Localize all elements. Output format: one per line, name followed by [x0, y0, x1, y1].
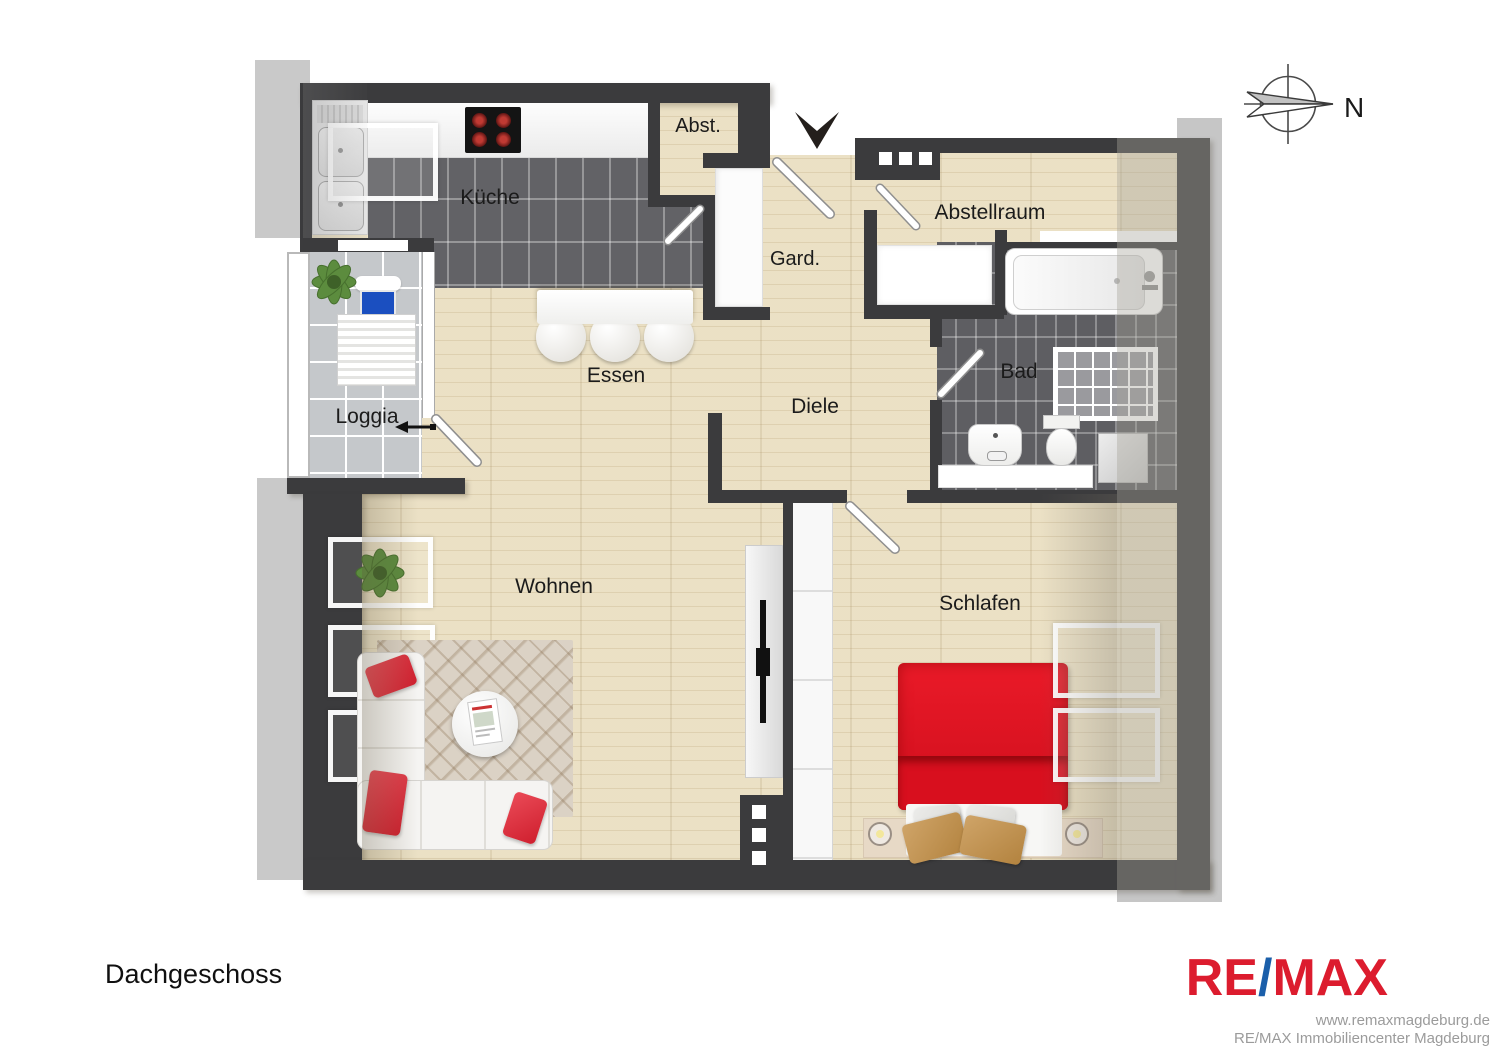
- wall-loggia-bottom: [287, 478, 465, 494]
- bed-duvet-fold: [898, 756, 1068, 810]
- closet: [793, 503, 833, 860]
- sun-lounger: [337, 314, 416, 386]
- lounger-pillow: [360, 290, 396, 316]
- entry-recess: [770, 103, 858, 155]
- glass-block-icon: [752, 805, 766, 819]
- room-label-kueche: Küche: [460, 186, 520, 210]
- nightstand-lamp-icon: [868, 822, 892, 846]
- room-label-abstellraum: Abstellraum: [935, 201, 1046, 225]
- roof-strip-left-bottom: [257, 478, 303, 880]
- wall-bath-left-top: [930, 317, 942, 347]
- skylight-window: [1053, 708, 1160, 782]
- loggia-side-window: [422, 252, 435, 418]
- glass-block-icon: [899, 152, 912, 165]
- shower: [1053, 347, 1158, 421]
- north-label: N: [1344, 92, 1364, 124]
- loggia-railing: [287, 252, 310, 478]
- room-label-essen: Essen: [587, 364, 645, 388]
- wall-top: [300, 83, 770, 103]
- compass-icon: [1244, 64, 1333, 144]
- footer-office: RE/MAX Immobiliencenter Magdeburg: [1234, 1030, 1490, 1048]
- room-label-bad: Bad: [1000, 360, 1037, 384]
- glass-block-icon: [752, 851, 766, 865]
- glass-block-icon: [752, 828, 766, 842]
- wall-diele-horiz: [708, 490, 847, 503]
- washbasin: [968, 424, 1022, 466]
- remax-logo: RE/MAX: [1186, 948, 1388, 1008]
- wall-abst-left: [648, 103, 660, 195]
- room-label-gard: Gard.: [770, 248, 820, 271]
- room-label-loggia: Loggia: [335, 405, 398, 429]
- glass-block-icon: [879, 152, 892, 165]
- footer-website: www.remaxmagdeburg.de: [1234, 1012, 1490, 1030]
- glass-block-icon: [919, 152, 932, 165]
- logo-slash: /: [1258, 949, 1272, 1007]
- wall-gard-bottom: [703, 307, 770, 320]
- storage-shelf: [877, 245, 992, 305]
- room-label-schlafen: Schlafen: [939, 592, 1021, 616]
- room-label-wohnen: Wohnen: [515, 575, 593, 599]
- logo-re: RE: [1186, 949, 1258, 1007]
- wardrobe: [715, 168, 763, 307]
- loggia-top-window: [338, 240, 408, 251]
- skylight-window: [328, 123, 438, 201]
- floorplan-canvas: Küche Abst. Gard. Abstellraum Bad Essen …: [0, 0, 1500, 1060]
- wall-left-top: [300, 83, 312, 245]
- wall-gard-top: [703, 153, 743, 168]
- wall-abst-bottom: [648, 195, 710, 207]
- tv-icon: [756, 648, 770, 676]
- skylight-window: [1053, 623, 1160, 698]
- bath-vanity: [938, 465, 1093, 488]
- room-label-diele: Diele: [791, 395, 839, 419]
- lounger-headrest: [355, 276, 401, 291]
- wall-gard-left: [703, 195, 715, 320]
- bath-top-window: [1040, 231, 1177, 242]
- wall-top-right: [940, 138, 1177, 153]
- footer-text: www.remaxmagdeburg.de RE/MAX Immobilienc…: [1234, 1012, 1490, 1048]
- faucet-icon: [1142, 285, 1158, 290]
- floor-title: Dachgeschoss: [105, 959, 282, 990]
- wall-right: [1177, 138, 1210, 890]
- logo-max: MAX: [1272, 949, 1388, 1007]
- stove-icon: [465, 107, 521, 153]
- top-right-outside: [858, 103, 1177, 138]
- bathtub: [1005, 248, 1163, 315]
- faucet-icon: [1144, 271, 1155, 282]
- nightstand-lamp-icon: [1065, 822, 1089, 846]
- wall-bath-bottom: [907, 490, 1177, 503]
- washing-machine: [1098, 433, 1148, 483]
- skylight-window: [328, 537, 433, 608]
- wall-abstellraum-left: [864, 210, 877, 317]
- toilet-bowl: [1046, 428, 1077, 466]
- room-label-abst: Abst.: [675, 115, 721, 138]
- magazine: [467, 698, 503, 746]
- toilet: [1043, 415, 1080, 429]
- dining-table: [537, 290, 693, 324]
